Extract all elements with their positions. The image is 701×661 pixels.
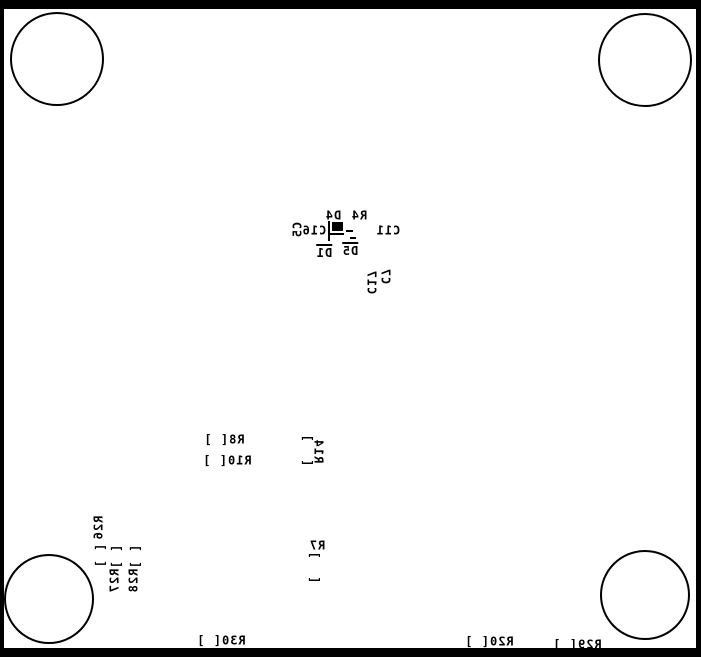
footprint-mark-cap-outline-hline [328,233,344,235]
component-label-R7: R7 [309,540,325,553]
board-outline-top [0,0,701,9]
component-label-R30: R30[ ] [196,635,245,648]
component-label-C17: C17 [365,270,378,295]
component-label-C7: C7 [379,268,392,284]
footprint-mark-pad-dash-2 [350,237,356,239]
component-label-C11: C11 [376,225,401,238]
component-label-R28: R28 [128,569,141,594]
component-label-D1: D1 [316,244,332,260]
pad-pair-R7: [ ] [308,552,321,585]
pad-pair-R27: [ ] [110,545,123,570]
footprint-mark-pad-dash-1 [346,230,353,232]
pad-pair-R14: [ ] [301,435,314,468]
mounting-hole-bottom-left [4,554,94,644]
footprint-mark-cap-outline-vline [328,221,330,241]
component-label-R20: R20[ ] [464,636,513,649]
pcb-board: C5C16D4R4D5D1C11C17C7R8[ ]R10[ ]R14[ ]R7… [0,0,701,661]
board-outline-left [0,0,4,657]
component-label-R4: R4 [351,210,367,223]
component-label-R10: R10[ ] [202,455,251,468]
component-label-R26: R26 [93,516,106,541]
footprint-mark-cap-body [332,222,343,231]
component-label-R29: R29[ ] [552,639,601,652]
mounting-hole-top-right [598,13,692,107]
component-label-C16: C16 [302,225,327,238]
component-label-D5: D5 [342,242,358,258]
board-outline-right [696,0,701,657]
pad-pair-R28: [ ] [129,545,142,570]
pad-pair-R26: [ ] [94,544,107,569]
component-label-R8: R8[ ] [203,434,244,447]
mounting-hole-bottom-right [600,550,690,640]
component-label-R27: R27 [109,569,122,594]
mounting-hole-top-left [10,12,104,106]
